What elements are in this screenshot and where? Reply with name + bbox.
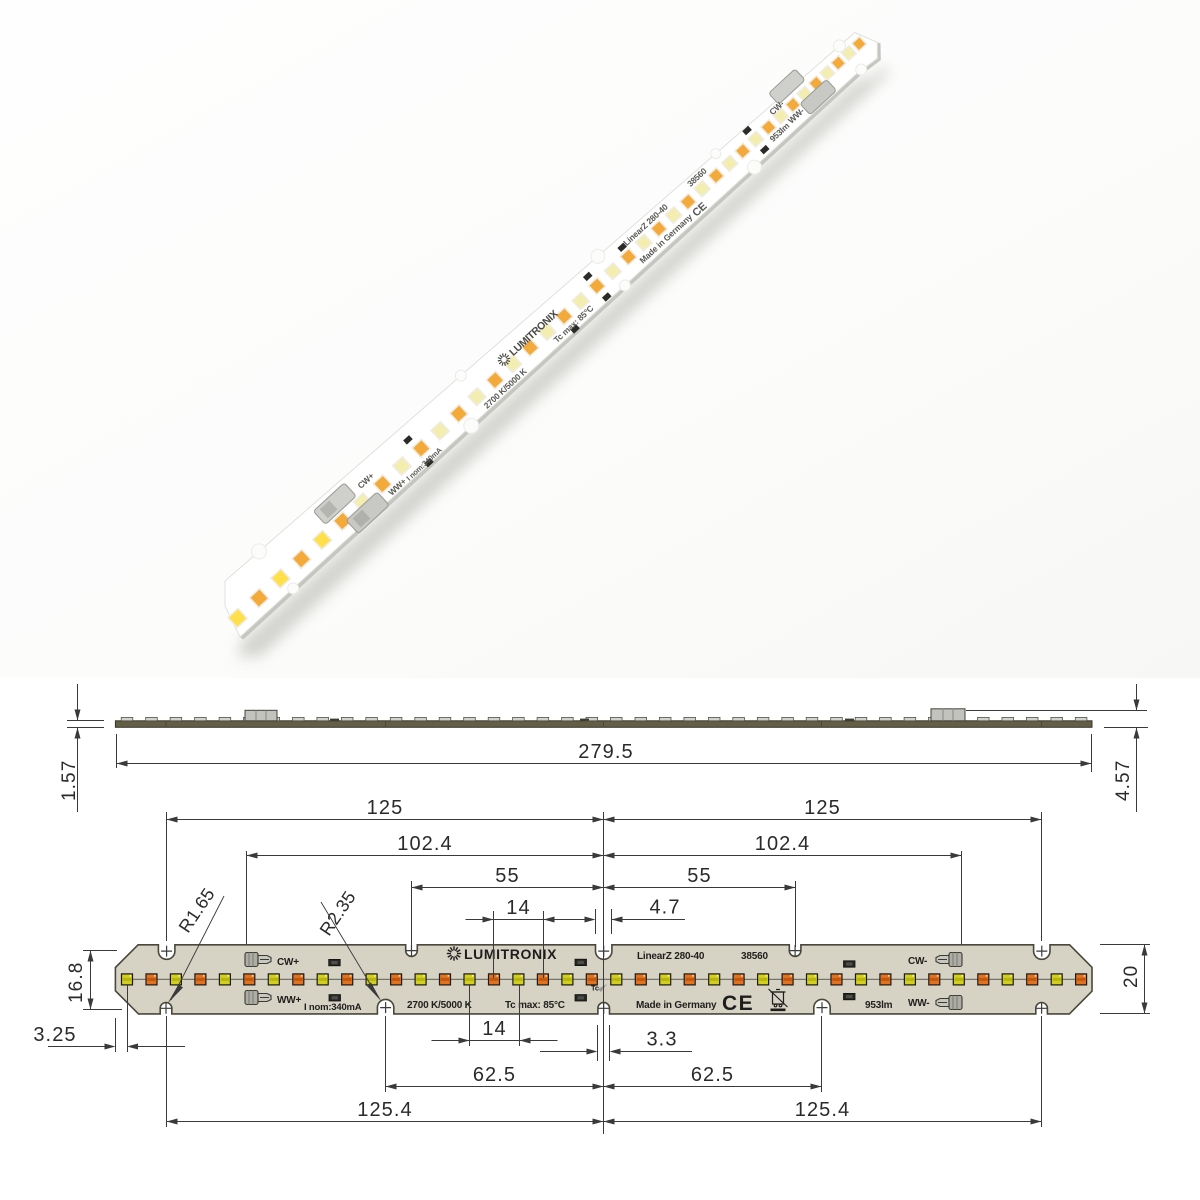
svg-text:Tc max: 85°C: Tc max: 85°C xyxy=(505,1000,565,1011)
svg-text:I nom:340mA: I nom:340mA xyxy=(304,1002,362,1013)
svg-text:14: 14 xyxy=(506,897,530,919)
svg-text:CW+: CW+ xyxy=(277,957,299,968)
svg-text:953lm: 953lm xyxy=(865,1000,893,1011)
svg-text:CW-: CW- xyxy=(908,956,927,967)
svg-text:38560: 38560 xyxy=(741,951,768,962)
svg-text:102.4: 102.4 xyxy=(397,833,453,855)
svg-text:14: 14 xyxy=(482,1018,506,1040)
svg-text:55: 55 xyxy=(495,865,519,887)
svg-text:R1.65: R1.65 xyxy=(175,884,219,936)
svg-text:Tc: Tc xyxy=(591,984,599,993)
svg-text:1.57: 1.57 xyxy=(59,760,80,801)
svg-text:102.4: 102.4 xyxy=(755,833,811,855)
svg-text:125.4: 125.4 xyxy=(795,1099,851,1121)
svg-text:279.5: 279.5 xyxy=(578,741,634,763)
svg-text:WW-: WW- xyxy=(908,998,929,1009)
svg-text:CE: CE xyxy=(722,992,754,1015)
svg-text:3.25: 3.25 xyxy=(33,1024,76,1046)
svg-text:20: 20 xyxy=(1121,965,1142,988)
svg-text:55: 55 xyxy=(687,865,711,887)
svg-text:62.5: 62.5 xyxy=(691,1064,734,1086)
svg-text:Made in Germany: Made in Germany xyxy=(636,1000,717,1011)
svg-text:3.3: 3.3 xyxy=(646,1029,677,1051)
svg-text:2700 K/5000 K: 2700 K/5000 K xyxy=(407,1000,473,1011)
svg-text:WW+: WW+ xyxy=(277,995,301,1006)
svg-text:125: 125 xyxy=(367,797,404,819)
svg-text:4.7: 4.7 xyxy=(649,897,680,919)
svg-text:62.5: 62.5 xyxy=(473,1064,516,1086)
svg-text:125.4: 125.4 xyxy=(357,1099,413,1121)
svg-text:LinearZ 280-40: LinearZ 280-40 xyxy=(637,951,705,962)
svg-text:4.57: 4.57 xyxy=(1113,760,1134,801)
svg-text:125: 125 xyxy=(804,797,841,819)
svg-text:16.8: 16.8 xyxy=(66,962,87,1003)
svg-text:R2.35: R2.35 xyxy=(316,887,360,939)
